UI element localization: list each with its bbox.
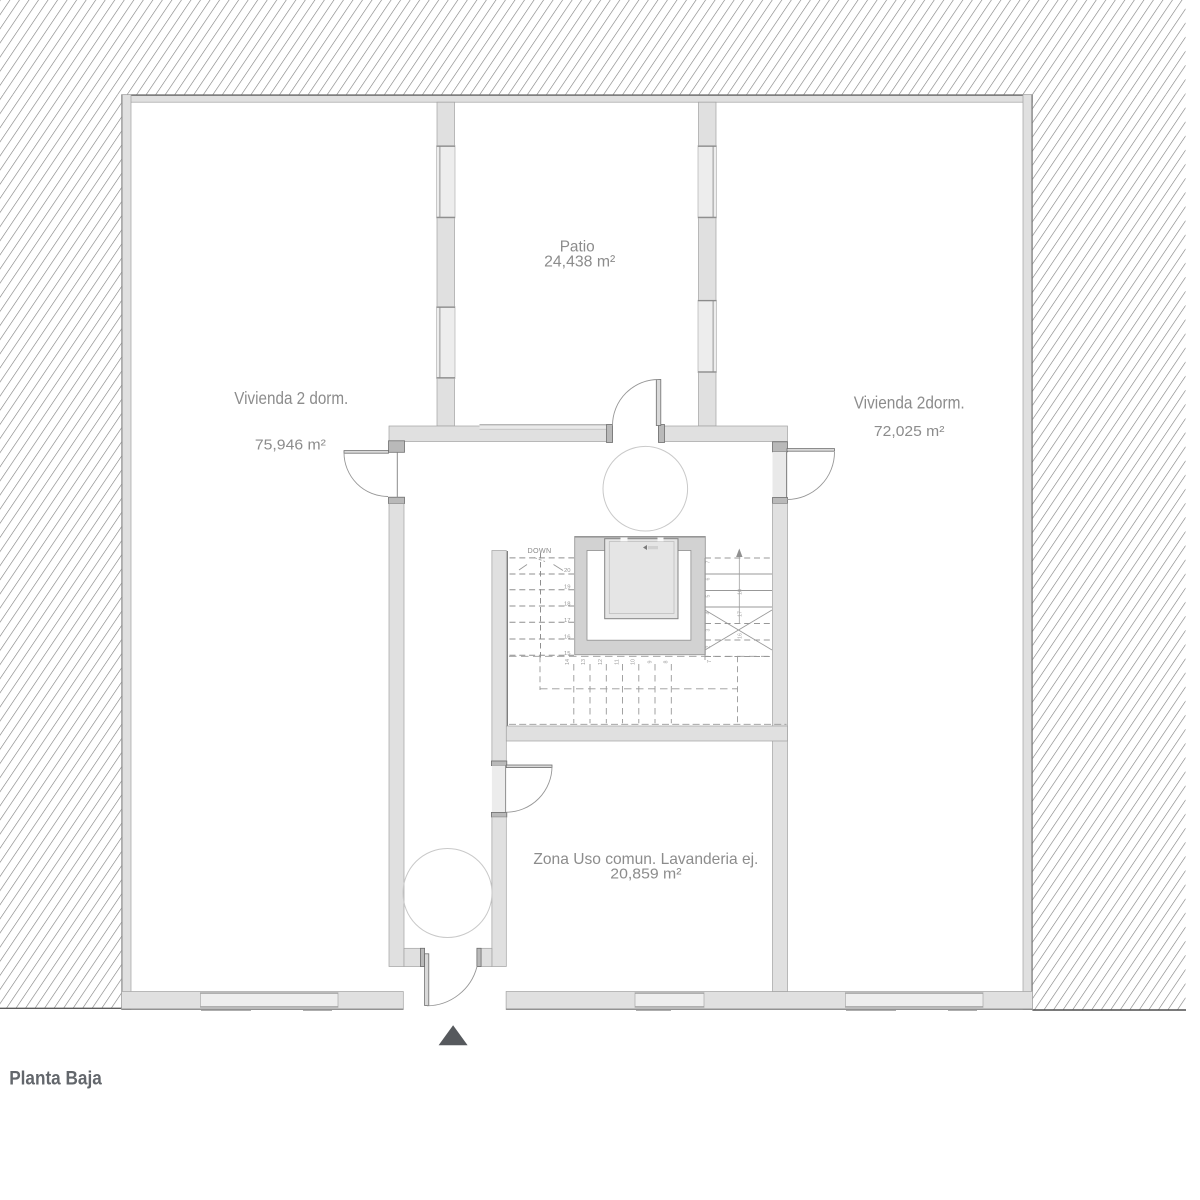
svg-text:20: 20 bbox=[564, 568, 571, 574]
svg-text:17: 17 bbox=[564, 618, 571, 624]
svg-text:Vivienda 2dorm.: Vivienda 2dorm. bbox=[854, 392, 965, 412]
svg-text:2: 2 bbox=[706, 645, 712, 648]
svg-text:20,859 m²: 20,859 m² bbox=[610, 866, 681, 883]
svg-text:12: 12 bbox=[598, 659, 604, 665]
svg-text:Vivienda 2 dorm.: Vivienda 2 dorm. bbox=[234, 388, 348, 408]
svg-text:18: 18 bbox=[738, 589, 744, 595]
svg-text:3: 3 bbox=[706, 628, 712, 631]
svg-text:72,025 m²: 72,025 m² bbox=[874, 424, 945, 440]
svg-text:18: 18 bbox=[564, 601, 571, 607]
svg-text:8: 8 bbox=[664, 661, 670, 664]
svg-text:17: 17 bbox=[738, 611, 744, 617]
svg-text:14: 14 bbox=[565, 659, 571, 665]
svg-text:75,946 m²: 75,946 m² bbox=[255, 437, 326, 453]
svg-text:5: 5 bbox=[706, 594, 712, 597]
svg-text:13: 13 bbox=[581, 659, 587, 665]
svg-text:DOWN: DOWN bbox=[528, 546, 552, 555]
svg-text:19: 19 bbox=[564, 585, 571, 591]
svg-text:6: 6 bbox=[706, 577, 712, 580]
svg-text:Planta Baja: Planta Baja bbox=[9, 1069, 102, 1090]
svg-text:7: 7 bbox=[706, 560, 712, 563]
svg-text:16: 16 bbox=[738, 633, 744, 639]
svg-text:24,438 m²: 24,438 m² bbox=[544, 253, 616, 270]
svg-text:7: 7 bbox=[707, 660, 713, 663]
svg-text:10: 10 bbox=[631, 659, 637, 665]
svg-text:9: 9 bbox=[647, 661, 653, 664]
svg-text:11: 11 bbox=[614, 659, 620, 665]
svg-text:4: 4 bbox=[706, 611, 712, 614]
svg-text:16: 16 bbox=[564, 635, 571, 641]
